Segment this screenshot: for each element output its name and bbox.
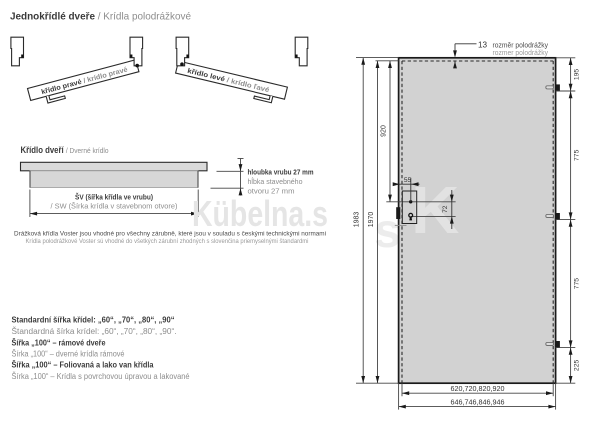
svg-text:1983: 1983 [354,212,361,228]
svg-text:72: 72 [442,205,449,213]
svg-text:Šírka „100“ – Krídla s povrcho: Šírka „100“ – Krídla s povrchovou úpravo… [12,372,191,381]
svg-text:hloubka vrubu 27 mm: hloubka vrubu 27 mm [248,167,314,176]
svg-text:Kübelna.s: Kübelna.s [192,193,328,234]
svg-text:1970: 1970 [368,212,375,228]
svg-text:775: 775 [574,278,581,290]
svg-text:Křídlo dveří / Dverné krídlo: Křídlo dveří / Dverné krídlo [21,145,109,155]
svg-text:13: 13 [478,41,488,50]
svg-text:Krídla polodrážkové Voster sú: Krídla polodrážkové Voster sú vhodné do … [26,238,309,245]
svg-text:646,746,846,946: 646,746,846,946 [451,397,505,406]
svg-text:/ SW (Šírka krídla v stavebnom: / SW (Šírka krídla v stavebnom otvore) [51,202,178,211]
svg-text:620,720,820,920: 620,720,820,920 [451,384,505,393]
svg-text:rozměr polodrážky: rozměr polodrážky [493,43,549,50]
svg-text:Standardní šířka křídel: „60“,: Standardní šířka křídel: „60“, „70“, „80… [12,316,175,325]
svg-text:775: 775 [574,149,581,161]
svg-text:ŠV (šířka křídla ve vrubu): ŠV (šířka křídla ve vrubu) [75,192,153,201]
svg-text:225: 225 [574,360,581,372]
svg-text:195: 195 [574,69,581,81]
svg-text:Šířka „100“ – Foliovaná a lako: Šířka „100“ – Foliovaná a lako van křídl… [12,361,155,370]
svg-text:Šířka „100“ – rámové dveře: Šířka „100“ – rámové dveře [12,338,106,347]
svg-text:Jednokřídlé dveře / Krídla pol: Jednokřídlé dveře / Krídla polodrážkové [10,12,191,23]
svg-text:hĺbka stavebného: hĺbka stavebného [248,177,303,186]
svg-text:rozmer polodrážky: rozmer polodrážky [493,50,549,57]
svg-text:55: 55 [404,177,412,184]
svg-text:920: 920 [380,125,387,137]
svg-text:Štandardná šírka krídel: „60“,: Štandardná šírka krídel: „60“, „70“, „80… [12,327,177,336]
svg-text:Šírka „100“ – dverné krídla rá: Šírka „100“ – dverné krídla rámové [12,350,126,359]
